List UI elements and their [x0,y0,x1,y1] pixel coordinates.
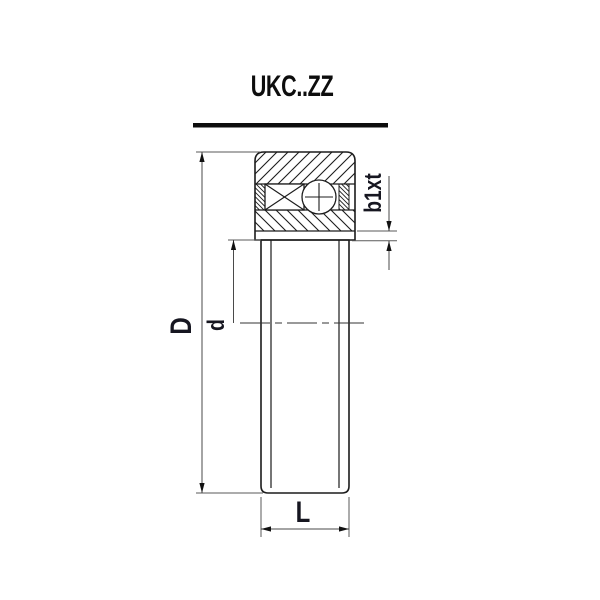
label-groove: b1xt [359,173,387,212]
inner-ring-hatch [255,210,355,231]
dimension-b1xt: b1xt [352,173,397,270]
bearing-section [255,152,355,240]
dimension-L: L [261,494,349,537]
shield-strip-right [339,184,349,210]
shield-strip-left [255,184,265,210]
title-underline [193,123,388,128]
arrow-up-icon [386,241,391,251]
arrow-up-icon [199,152,204,162]
label-bore-diameter: d [202,319,230,331]
arrow-down-icon [199,483,204,493]
label-outer-diameter: D [163,317,197,334]
outer-ring-hatch [255,152,355,184]
arrow-right-icon [339,526,349,531]
body-outline [261,240,349,493]
arrow-up-icon [231,240,236,250]
arrow-left-icon [261,526,271,531]
technical-drawing-page: UKC..ZZ [0,0,600,600]
cage-box [265,184,304,210]
page-title: UKC..ZZ [251,68,334,102]
dimension-d: d [202,240,261,331]
sleeve-body [261,240,349,493]
arrow-down-icon [386,221,391,231]
ball-element [302,180,336,214]
label-width: L [296,494,311,528]
bearing-drawing: UKC..ZZ [0,0,600,600]
